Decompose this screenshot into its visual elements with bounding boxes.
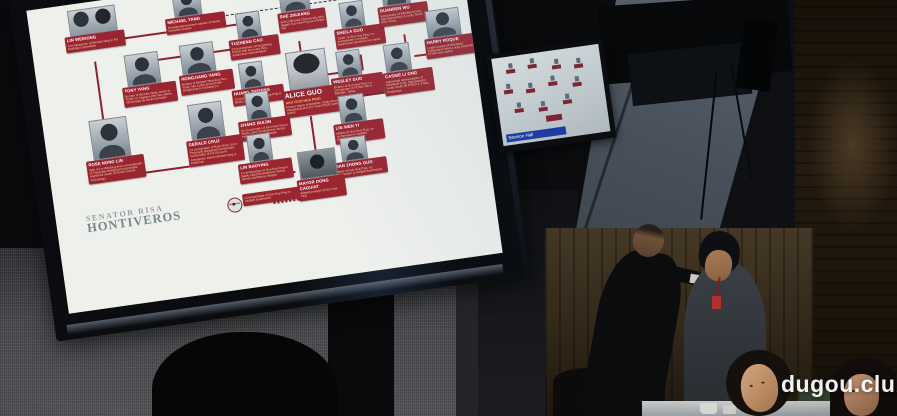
portrait-harry-roque [424,7,462,39]
connector-line [196,45,199,53]
card-desc: Incorporator of Whirlwind Corp. that lea… [380,9,427,25]
connector-line [238,148,244,151]
portrait-lin-baoying [246,132,274,163]
connector-line [342,92,386,100]
cup [700,403,717,414]
watermark: dugou.club [781,371,897,398]
card-name: LIN WEN YI [335,120,381,131]
card-name: SHE ZHIJIANG [279,9,323,20]
card-desc: Brother of Guo Hua Ping; co-incorporator… [334,79,383,96]
card-name: SHEILA GUO [336,25,382,36]
preview-screen: Session Hall [491,44,610,146]
bamban-seal-icon: BAMBAN [226,197,243,214]
card-lin-wen-yi: LIN WEN YI Mother of Guo Hua Ping; co-in… [333,118,385,144]
card-name: ZHANG RUIJIN [240,117,288,128]
card-huang-zhiyang: HUANG ZHIYANG Co-incorporator of Guo Hua… [231,84,285,107]
portrait-duanren-wu [379,0,411,7]
card-name: HUANG ZHIYANG [234,86,282,97]
portrait-rose-nono-lin [88,116,131,161]
card-cassie-li-ong: CASSIE LI ONG Authorized representative … [383,67,436,97]
portrait-alice-guo [285,48,330,91]
card-desc: Co-chairperson of Michael Yang in Ful Ho… [67,37,123,51]
cup [723,405,736,414]
card-name: HARRY ROQUE [426,35,472,46]
connector-line [121,31,167,39]
card-desc: Co-incorporator of Guo Hua Ping in Baofu… [235,91,283,104]
card-desc: Former mayor of Bamban, Tarlac whose Hon… [286,98,345,116]
card-desc: Brother of Michael Yang and Tony Yang; h… [182,76,233,93]
card-desc: Presidential economic adviser of former … [168,19,224,33]
connector-line [360,54,364,68]
card-mayor-dong-caguiat: MAYOR DONG CAGUIAT Alleged protege of Gu… [297,174,347,201]
card-name: ROSE NONO LIN [88,156,142,168]
card-desc: 'Sister' of Guo Hua Ping; co-incorporato… [337,31,384,47]
card-she-zhijiang: SHE ZHIJIANG Self-confessed Chinese spy … [277,7,327,33]
connector-line [140,45,259,64]
card-tony-yang: TONY YANG Brother of Michael Yang; owner… [122,81,178,108]
connector-line [141,61,146,85]
portrait-she-zhijiang [277,0,311,13]
portrait-hongjiang-yang [179,41,217,75]
id-badge [711,295,722,310]
broadcast-caption: Session Hall [506,126,567,142]
card-desc: Co-incorporator of Guo Hua Ping in Baofu… [241,165,292,182]
dotted-connector [273,199,299,205]
card-michael-yang: MICHAEL YANG Presidential economic advis… [165,11,227,35]
portrait-jian-zhong-guo [339,135,368,162]
logo-line2: HONTIVEROS [86,203,217,236]
card-desc: Legal counsel of Whirlwind Corporation w… [427,40,474,56]
connector-line [94,61,104,119]
connector-line [222,24,236,28]
card-zhang-ruijin: ZHANG RUIJIN Co-incorporator of Guo Hua … [238,115,292,142]
card-lin-baoying: LIN BAOYING Co-incorporator of Guo Hua P… [238,157,294,184]
card-duanren-wu: DUANREN WU Incorporator of Whirlwind Cor… [377,1,429,27]
hearing-room-photo: LIN WEIDONG Co-chairperson of Michael Ya… [0,0,897,416]
card-yuzheng-cao: YUZHENG CAO Co-incorporator of Hongsheng… [228,34,280,60]
connector-line [310,116,317,150]
portrait-sheila-guo [338,0,365,29]
connector-line [326,68,364,75]
wood-highlight [808,60,897,230]
portrait-tony-yang [124,51,162,87]
card-jian-zhong-guo: JIAN ZHONG GUO Father of Guo Hua Ping; c… [333,156,389,180]
logo-line1: SENATOR RISA [85,196,215,223]
org-chart-slide: LIN WEIDONG Co-chairperson of Michael Ya… [26,0,502,314]
portrait-zhang-ruijin [244,90,272,121]
card-name: JIAN ZHONG GUO [335,158,385,169]
card-name: ALICE GUO [284,86,342,101]
portrait-huang-zhiyang [238,60,265,89]
card-sheila-guo: SHEILA GUO 'Sister' of Guo Hua Ping; co-… [334,23,386,49]
card-desc: co-incorporator of Guo Hua Ping in multi… [244,190,298,204]
card-desc: Co-incorporator of Rose Nono Lin in Phys… [189,142,243,166]
card-wesley-guo: WESLEY GUO Brother of Guo Hua Ping; co-i… [331,72,385,99]
connector-line [204,52,209,72]
preview-monitor: Session Hall [486,38,617,153]
connector-line [403,34,406,42]
connector-line [289,171,295,174]
card-alice-guo: ALICE GUO AKA GUO HUA PING Former mayor … [282,83,347,118]
card-desc: Wife of Lin Weidong and co-incorporator … [89,162,144,183]
card-name: DUANREN WU [380,3,426,14]
card-name: MAYOR DONG CAGUIAT [299,176,344,191]
card-name: HONGJIANG YANG [181,71,231,82]
ceiling-camera-rig [590,0,805,125]
portrait-cassie-li-ong [383,42,413,73]
connector-line [298,41,301,51]
card-gerald-cruz: GERALD CRUZ Co-incorporator of Rose Nono… [186,134,245,168]
card-name: GERALD CRUZ [188,136,240,148]
portrait-lin-weidong [67,4,118,36]
card-desc: Alleged protege of Guo Hua Ping [300,186,345,199]
card-desc: Authorized representative of Whirlwind C… [386,75,433,95]
hontiveros-logo: SENATOR RISA HONTIVEROS [85,196,217,236]
connector-line [142,166,190,175]
bamban-caption: co-incorporator of Guo Hua Ping in multi… [242,186,301,206]
bamban-label: BAMBAN [229,202,240,206]
card-name: LIN WEIDONG [67,32,123,44]
card-desc: Self-confessed Chinese spy who tagged Gu… [280,15,325,31]
card-desc: Father of Guo Hua Ping; co-incorporator … [336,164,386,178]
portrait-michael-yang [171,0,202,18]
card-name: TONY YANG [124,83,174,94]
portrait-yuzheng-cao [235,10,262,39]
card-harry-roque: HARRY ROQUE Legal counsel of Whirlwind C… [424,33,476,59]
card-name: MICHAEL YANG [167,13,223,25]
card-name: CASSIE LI ONG [385,69,431,80]
card-name: YUZHENG CAO [231,36,277,47]
card-rose-nono-lin: ROSE NONO LIN Wife of Lin Weidong and co… [86,154,147,185]
card-aka: AKA GUO HUA PING [285,93,343,105]
card-desc: Co-incorporator of Hongsheng POGO with G… [232,42,279,58]
card-name: LIN BAOYING [240,160,290,171]
card-lin-weidong: LIN WEIDONG Co-chairperson of Michael Ya… [64,29,126,53]
portrait-mayor-dong-caguiat [297,147,339,180]
portrait-gerald-cruz [187,101,226,141]
connector-line [414,53,426,57]
card-desc: Mother of Guo Hua Ping; co-incorporator … [336,126,383,142]
card-hongjiang-yang: HONGJIANG YANG Brother of Michael Yang a… [179,69,235,96]
card-name: WESLEY GUO [333,74,381,85]
card-desc: Brother of Michael Yang; owner of POGO i… [125,88,176,105]
portrait-lin-wen-yi [337,93,367,124]
card-desc: Co-incorporator of Guo Hua Ping in Baofu… [241,123,290,140]
portrait-wesley-guo [335,49,362,78]
dashed-connector [221,0,376,17]
